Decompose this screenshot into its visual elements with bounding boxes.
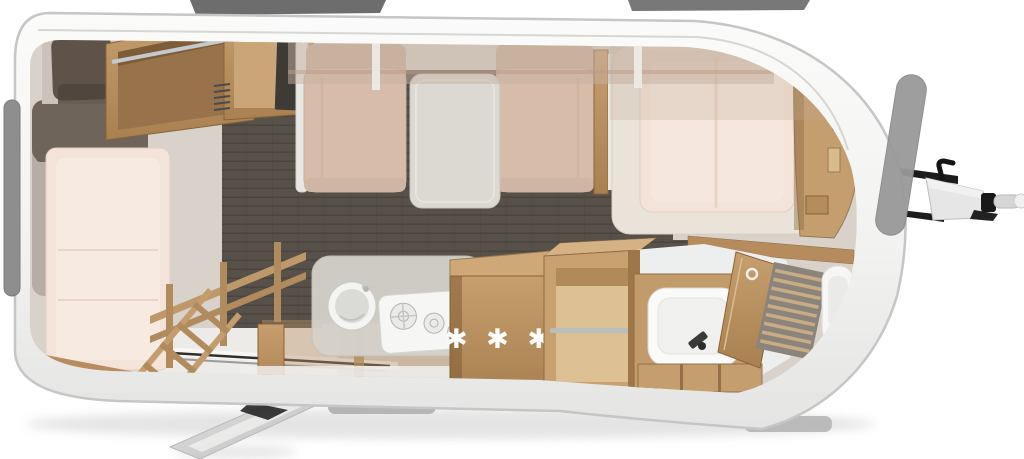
freezer-rating-stars: ✱ ✱ ✱: [445, 324, 555, 355]
hanging-rail: [550, 328, 634, 333]
caravan-floorplan-screenshot: ✱ ✱ ✱: [0, 0, 1024, 459]
hitch-drawbar: [900, 161, 1024, 222]
window-icon: [628, 0, 810, 11]
under-basin-shelf: [638, 364, 762, 392]
dinette-table: [410, 74, 500, 208]
rear-window-icon: [4, 100, 20, 296]
coupling-cap: [1014, 194, 1024, 208]
window-icon: [190, 0, 386, 15]
top-wall-windows: [190, 0, 810, 15]
shelf-item: [828, 148, 840, 172]
caravan-floorplan-rendering: ✱ ✱ ✱: [0, 0, 1024, 459]
bench-seat-left: [304, 68, 406, 192]
